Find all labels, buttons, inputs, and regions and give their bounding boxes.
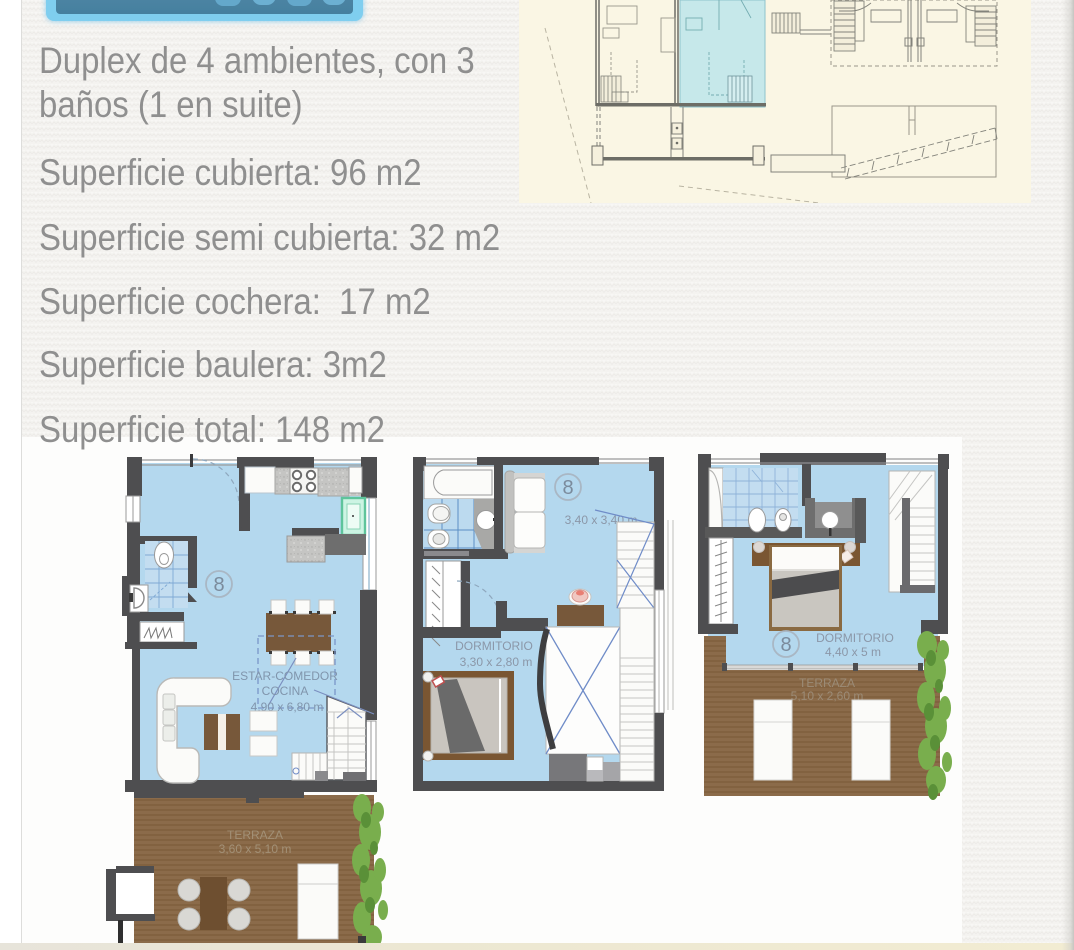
- svg-text:8: 8: [213, 574, 224, 596]
- svg-text:COCINA: COCINA: [262, 684, 309, 698]
- svg-text:ESTAR-COMEDOR: ESTAR-COMEDOR: [232, 669, 338, 683]
- svg-text:DORMITORIO: DORMITORIO: [816, 631, 894, 645]
- svg-text:DORMITORIO: DORMITORIO: [455, 639, 533, 653]
- svg-text:3,30 x 2,80 m: 3,30 x 2,80 m: [460, 655, 533, 669]
- svg-text:8: 8: [562, 477, 573, 499]
- svg-text:8: 8: [780, 634, 791, 656]
- svg-text:4,40 x 5 m: 4,40 x 5 m: [825, 645, 881, 659]
- svg-text:3,60 x 5,10 m: 3,60 x 5,10 m: [219, 842, 292, 856]
- svg-text:TERRAZA: TERRAZA: [227, 828, 283, 842]
- svg-text:TERRAZA: TERRAZA: [799, 676, 855, 690]
